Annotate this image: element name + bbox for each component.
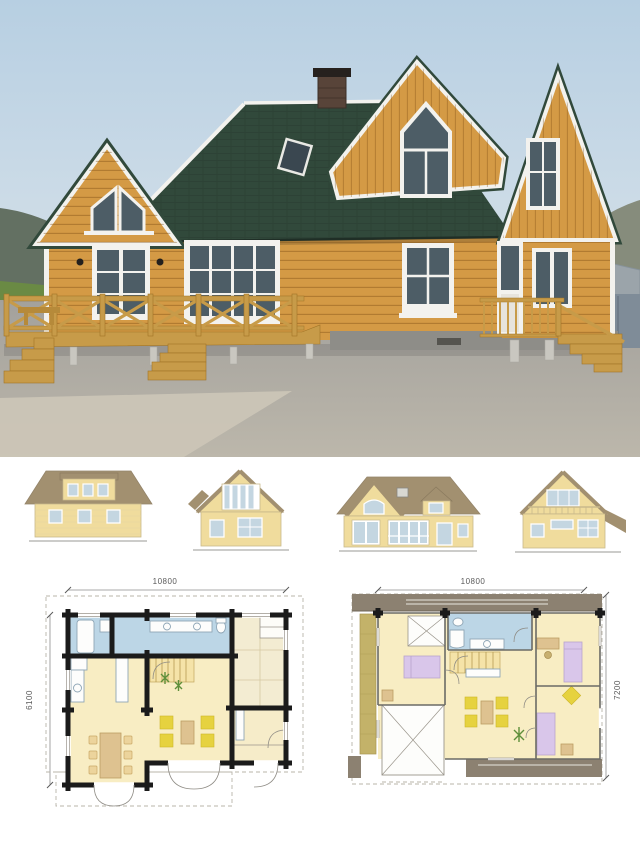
window [531,524,544,537]
low-table [481,701,493,724]
tatami-closet [260,617,286,638]
elevation-side [22,464,154,550]
shower-unit [450,630,464,648]
void-open-below [382,705,444,782]
dimension-width-label: 10800 [461,577,486,586]
windows [49,510,120,523]
elevation-gable-end [188,466,294,556]
floor-plan-second: 10800 7200 [348,570,640,817]
porch-lamp-icon [157,259,164,266]
side-table [382,690,393,701]
balcony [360,614,376,754]
stairwell [450,652,500,677]
porch-lamp-icon [77,259,84,266]
chimney [313,68,351,108]
window-large [238,518,262,537]
shoe-cabinet [236,710,244,740]
elevation-rear-gable [508,466,628,560]
vanity-counter [150,621,212,632]
kitchen-sink [74,684,82,692]
dimension-top: 10800 [65,577,289,593]
corner-board-left [44,237,49,335]
dimension-right: 7200 [603,592,622,781]
door [437,523,452,545]
dimension-depth-label: 7200 [613,680,622,700]
window [210,520,224,537]
closet-x [408,616,445,646]
kitchen-island [116,658,128,702]
roof-hatch [397,488,408,497]
arch-window [364,500,384,514]
main-window [399,243,457,318]
architectural-presentation: 10800 6100 [0,0,640,857]
bed [404,656,440,678]
dimension-top: 10800 [375,577,587,593]
bed [564,642,582,682]
dimension-left: 6100 [25,612,53,788]
gable-glazing [222,484,260,510]
dimension-depth-label: 6100 [25,690,34,710]
roof-band-top [352,594,602,611]
futon [537,713,555,755]
sliding-doors [388,520,429,545]
corner-board-right [610,242,615,338]
coffee-table [181,721,194,744]
side-table [561,744,573,755]
window-grid [578,520,598,537]
foundation-vent [437,338,461,345]
stair-rail [466,669,500,677]
house-photo [0,0,640,457]
elevation-front [333,468,483,558]
desk [537,638,559,649]
sink-basin [164,623,171,630]
french-doors [352,520,380,545]
dining-table [100,733,121,778]
dimension-width-label: 10800 [153,577,178,586]
bathtub [77,620,94,653]
window-small [458,524,468,537]
right-gable-tall-window [526,138,560,210]
window-wide [551,520,573,529]
sink-basin [194,623,201,630]
desk-chair [545,652,552,659]
toilet-tank [216,618,226,623]
stairs [150,658,194,682]
floor-plan-first: 10800 6100 [20,570,320,817]
dormer [60,473,118,500]
dining-set [89,733,132,778]
upper-window [547,490,579,506]
